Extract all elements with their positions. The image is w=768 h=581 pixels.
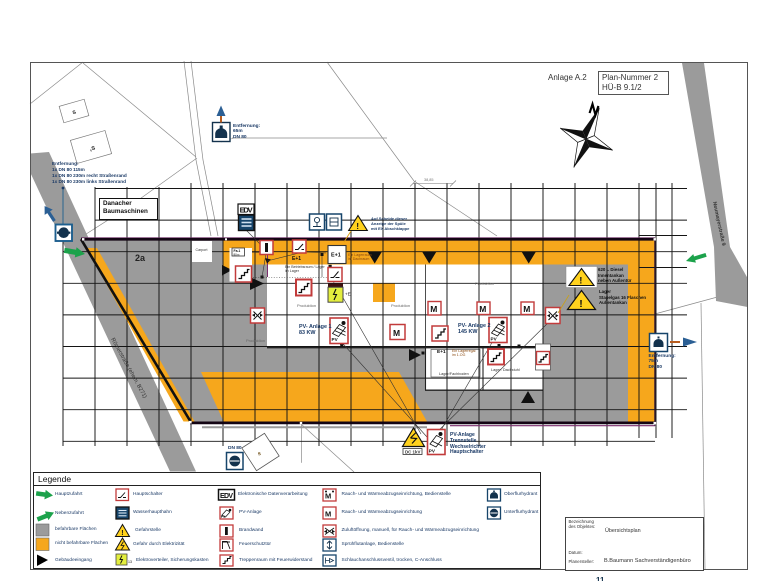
svg-text:M: M [479,304,486,314]
svg-text:38,85: 38,85 [424,178,434,182]
svg-text:80m: 80m [234,252,240,256]
svg-text:M: M [430,304,437,314]
svg-text:E+1: E+1 [331,253,341,259]
svg-text:PV: PV [429,449,436,454]
svg-text:EDV: EDV [220,493,233,500]
svg-text:DC 1kV: DC 1kV [405,449,420,454]
svg-text:PV: PV [221,514,226,518]
svg-text:!: ! [579,298,583,310]
svg-text:13: 13 [128,560,132,564]
svg-text:EDV: EDV [240,206,253,215]
svg-text:M: M [393,328,400,338]
svg-text:M: M [325,491,331,500]
svg-text:+E: +E [345,292,351,297]
svg-text:PV: PV [491,337,498,342]
svg-text:M: M [523,304,530,314]
svg-text:!: ! [356,221,359,231]
svg-text:M: M [325,509,331,518]
svg-text:PV: PV [332,337,339,342]
svg-text:!: ! [579,276,582,287]
svg-text:!: ! [121,530,123,537]
